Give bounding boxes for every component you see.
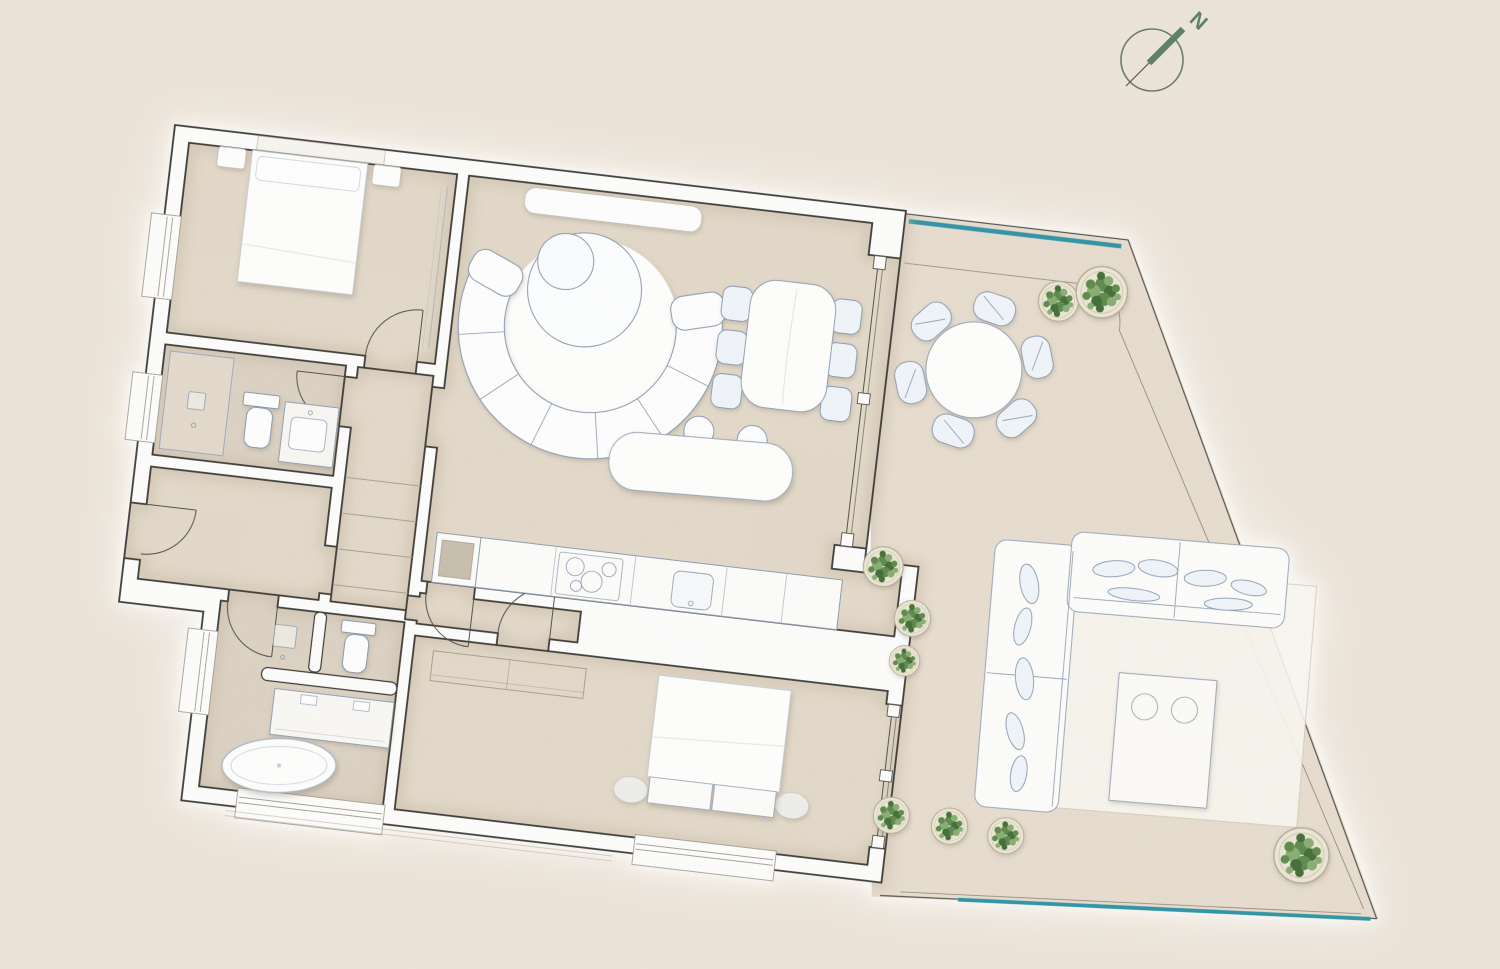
floor-plan-page: N <box>0 0 1500 969</box>
nightstand <box>371 164 401 187</box>
vanity <box>278 402 339 468</box>
nightstand <box>216 146 246 169</box>
freestanding-bathtub <box>222 738 336 793</box>
tall-unit <box>438 540 474 579</box>
outdoor-coffee-table <box>1109 673 1217 809</box>
shower-drain <box>273 624 297 648</box>
kitchen-sink <box>670 570 714 610</box>
dining-chair <box>710 373 744 410</box>
floor-plan-canvas: N <box>0 0 1500 969</box>
double-bed <box>237 150 368 295</box>
terrace-lounge <box>964 515 1329 844</box>
double-bed-2 <box>644 675 791 818</box>
shower-drain <box>187 391 206 410</box>
